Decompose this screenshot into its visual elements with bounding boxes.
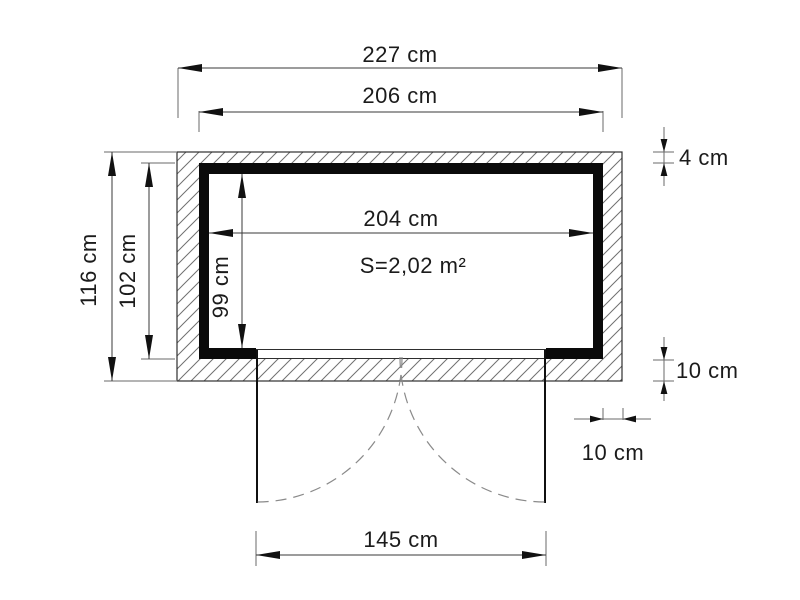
arrow-up-icon [661, 163, 668, 176]
floor-plan-page: 227 cm 206 cm 116 cm 102 cm 204 cm S=2,0… [0, 0, 800, 600]
total-depth-label: 116 cm [76, 233, 101, 307]
extension-ticks [603, 408, 623, 420]
arrow-down-icon [661, 347, 668, 360]
total-width-label: 227 cm [362, 42, 437, 67]
extension-lines [141, 163, 175, 359]
dim-base-thickness-vertical: 10 cm [653, 337, 738, 401]
extension-lines [199, 111, 603, 132]
arrow-right-icon [590, 416, 603, 423]
dim-front-wall-thickness: 4 cm [653, 127, 729, 186]
interior-depth-label: 99 cm [208, 256, 233, 318]
dim-base-thickness-horizontal: 10 cm [574, 408, 651, 465]
base-thickness-vertical-label: 10 cm [676, 358, 738, 383]
arrow-left-icon [623, 416, 636, 423]
door-opening-width-label: 145 cm [363, 527, 438, 552]
frame-outer-width-label: 206 cm [362, 83, 437, 108]
floor-plan-diagram: 227 cm 206 cm 116 cm 102 cm 204 cm S=2,0… [0, 0, 800, 600]
arrow-down-icon [661, 139, 668, 152]
base-thickness-horizontal-label: 10 cm [582, 440, 644, 465]
arrow-up-icon [661, 381, 668, 394]
frame-outer-depth-label: 102 cm [115, 233, 140, 308]
area-label: S=2,02 m² [360, 253, 467, 278]
dim-door-opening: 145 cm [256, 527, 546, 566]
front-wall-thickness-label: 4 cm [679, 145, 729, 170]
dim-frame-outer-depth: 102 cm [115, 163, 175, 359]
dim-frame-outer-width: 206 cm [199, 83, 603, 132]
interior-width-label: 204 cm [363, 206, 438, 231]
